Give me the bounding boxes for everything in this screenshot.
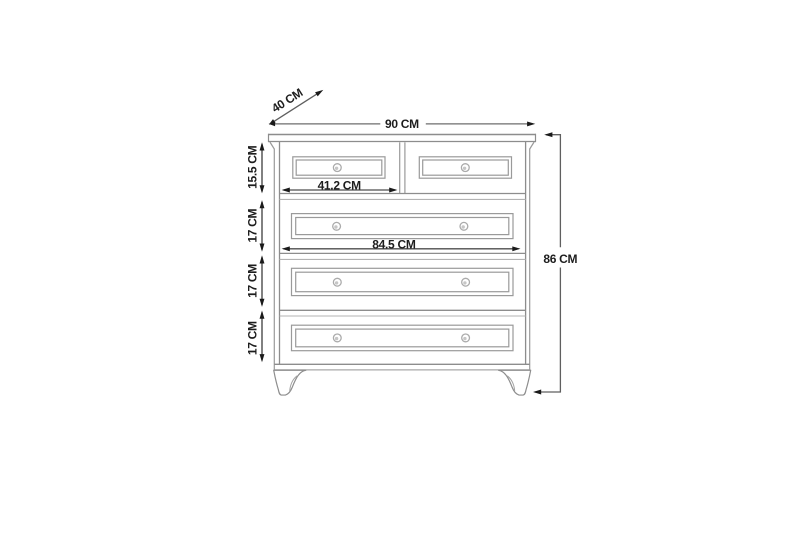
svg-text:41.2 CM: 41.2 CM	[318, 179, 362, 193]
svg-text:17 CM: 17 CM	[245, 321, 259, 355]
svg-text:15.5 CM: 15.5 CM	[245, 145, 259, 189]
svg-text:86 CM: 86 CM	[543, 252, 577, 266]
svg-text:17 CM: 17 CM	[245, 208, 259, 242]
svg-text:17 CM: 17 CM	[245, 264, 259, 298]
svg-text:84.5 CM: 84.5 CM	[372, 237, 416, 251]
svg-text:90 CM: 90 CM	[385, 117, 419, 131]
